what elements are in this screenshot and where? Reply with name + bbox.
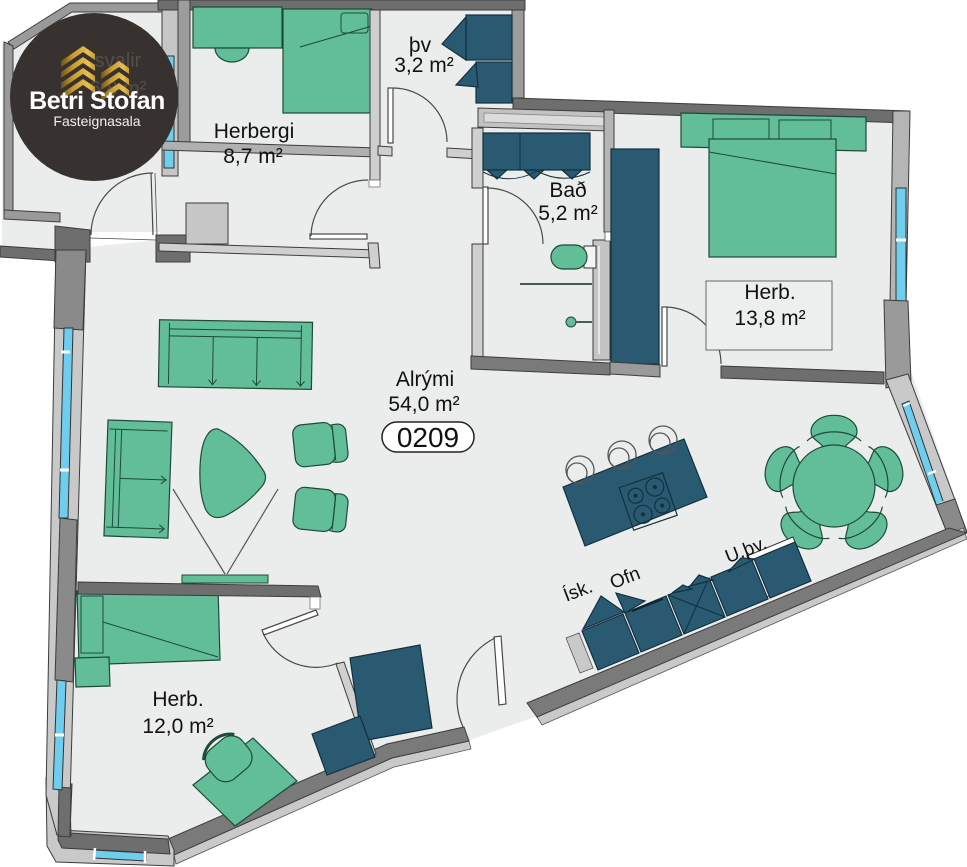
svg-text:Herb.: Herb. — [744, 281, 795, 304]
svg-text:svalir: svalir — [95, 50, 142, 72]
svg-text:5,2 m²: 5,2 m² — [538, 202, 598, 225]
svg-text:Fasteignasala: Fasteignasala — [53, 113, 140, 129]
svg-text:12,0 m²: 12,0 m² — [142, 715, 213, 738]
svg-text:Bað: Bað — [549, 179, 586, 202]
svg-text:Herbergi: Herbergi — [214, 120, 295, 143]
svg-text:13,8 m²: 13,8 m² — [734, 307, 805, 330]
svg-text:Alrými: Alrými — [396, 368, 454, 391]
svg-text:0209: 0209 — [397, 422, 459, 453]
svg-text:54,0 m²: 54,0 m² — [388, 393, 459, 416]
svg-text:Betri Stofan: Betri Stofan — [29, 87, 165, 115]
svg-text:3,2 m²: 3,2 m² — [394, 54, 454, 77]
svg-text:8,7 m²: 8,7 m² — [223, 145, 283, 168]
svg-text:Herb.: Herb. — [152, 688, 203, 711]
